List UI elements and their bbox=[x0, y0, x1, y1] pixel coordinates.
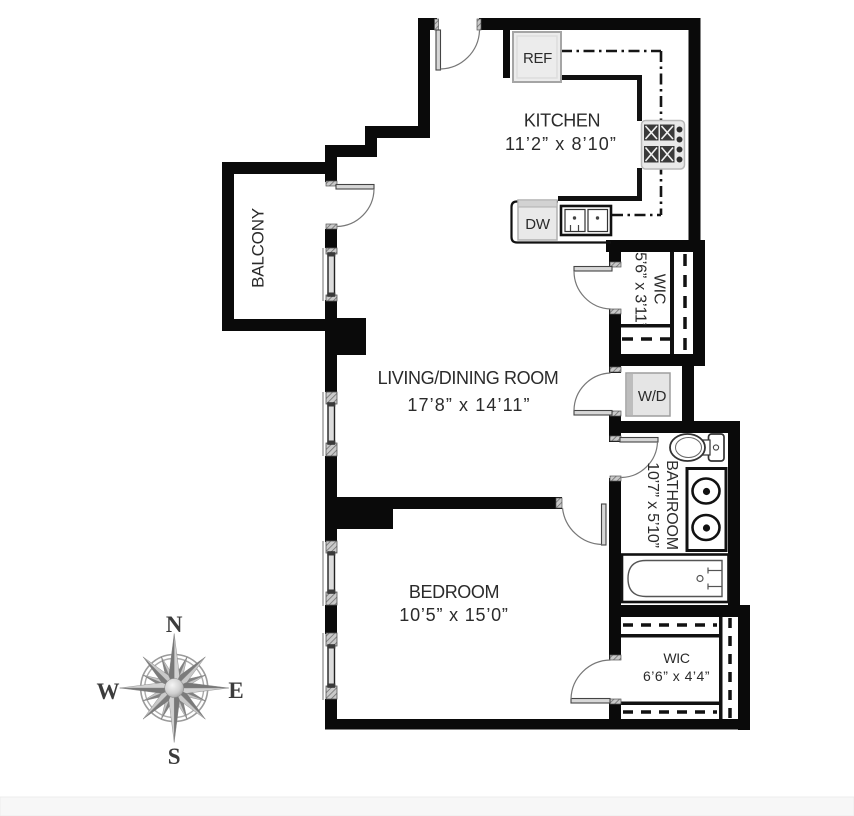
svg-text:10’5” x 15’0”: 10’5” x 15’0” bbox=[399, 605, 508, 625]
svg-text:E: E bbox=[228, 678, 243, 703]
svg-text:W: W bbox=[97, 679, 120, 704]
svg-text:17’8” x 14’11”: 17’8” x 14’11” bbox=[407, 395, 530, 415]
svg-text:BALCONY: BALCONY bbox=[249, 208, 268, 288]
svg-text:6’6” x 4’4”: 6’6” x 4’4” bbox=[643, 668, 710, 684]
svg-text:BEDROOM: BEDROOM bbox=[409, 582, 499, 602]
svg-text:11’2” x 8’10”: 11’2” x 8’10” bbox=[505, 134, 617, 154]
svg-text:LIVING/DINING ROOM: LIVING/DINING ROOM bbox=[378, 368, 559, 388]
svg-text:10’7” x 5’10”: 10’7” x 5’10” bbox=[644, 462, 661, 547]
svg-text:N: N bbox=[166, 612, 183, 637]
svg-text:DW: DW bbox=[525, 216, 551, 233]
svg-text:5’6” x 3’11’: 5’6” x 3’11’ bbox=[632, 252, 649, 326]
svg-text:KITCHEN: KITCHEN bbox=[524, 111, 600, 131]
svg-text:W/D: W/D bbox=[638, 388, 667, 405]
svg-text:WIC: WIC bbox=[651, 274, 668, 305]
svg-text:S: S bbox=[168, 744, 181, 769]
svg-text:WIC: WIC bbox=[663, 650, 690, 666]
svg-text:REF: REF bbox=[523, 50, 552, 67]
svg-text:BATHROOM: BATHROOM bbox=[663, 460, 680, 550]
